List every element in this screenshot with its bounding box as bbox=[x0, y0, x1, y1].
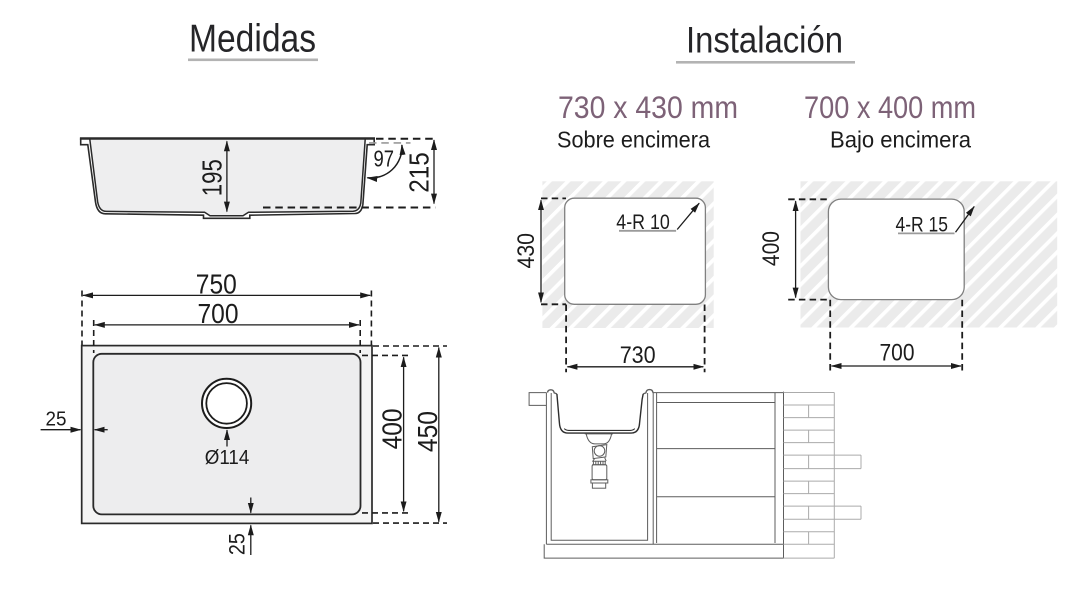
svg-text:730: 730 bbox=[620, 342, 656, 369]
svg-text:400: 400 bbox=[377, 408, 408, 449]
svg-text:430: 430 bbox=[513, 233, 540, 269]
svg-text:Bajo encimera: Bajo encimera bbox=[830, 127, 972, 153]
svg-text:Sobre encimera: Sobre encimera bbox=[557, 127, 711, 153]
svg-text:450: 450 bbox=[412, 411, 443, 452]
svg-text:25: 25 bbox=[225, 533, 250, 555]
svg-text:Instalación: Instalación bbox=[686, 20, 843, 61]
svg-text:730 x 430 mm: 730 x 430 mm bbox=[558, 89, 738, 125]
svg-text:215: 215 bbox=[403, 152, 434, 193]
svg-text:700: 700 bbox=[880, 339, 915, 366]
svg-text:Medidas: Medidas bbox=[189, 17, 316, 60]
svg-text:Ø114: Ø114 bbox=[205, 446, 250, 469]
svg-text:400: 400 bbox=[758, 231, 785, 266]
svg-text:25: 25 bbox=[46, 408, 67, 431]
svg-text:195: 195 bbox=[196, 159, 227, 196]
svg-text:700 x 400 mm: 700 x 400 mm bbox=[804, 89, 976, 125]
svg-text:97: 97 bbox=[374, 145, 395, 171]
